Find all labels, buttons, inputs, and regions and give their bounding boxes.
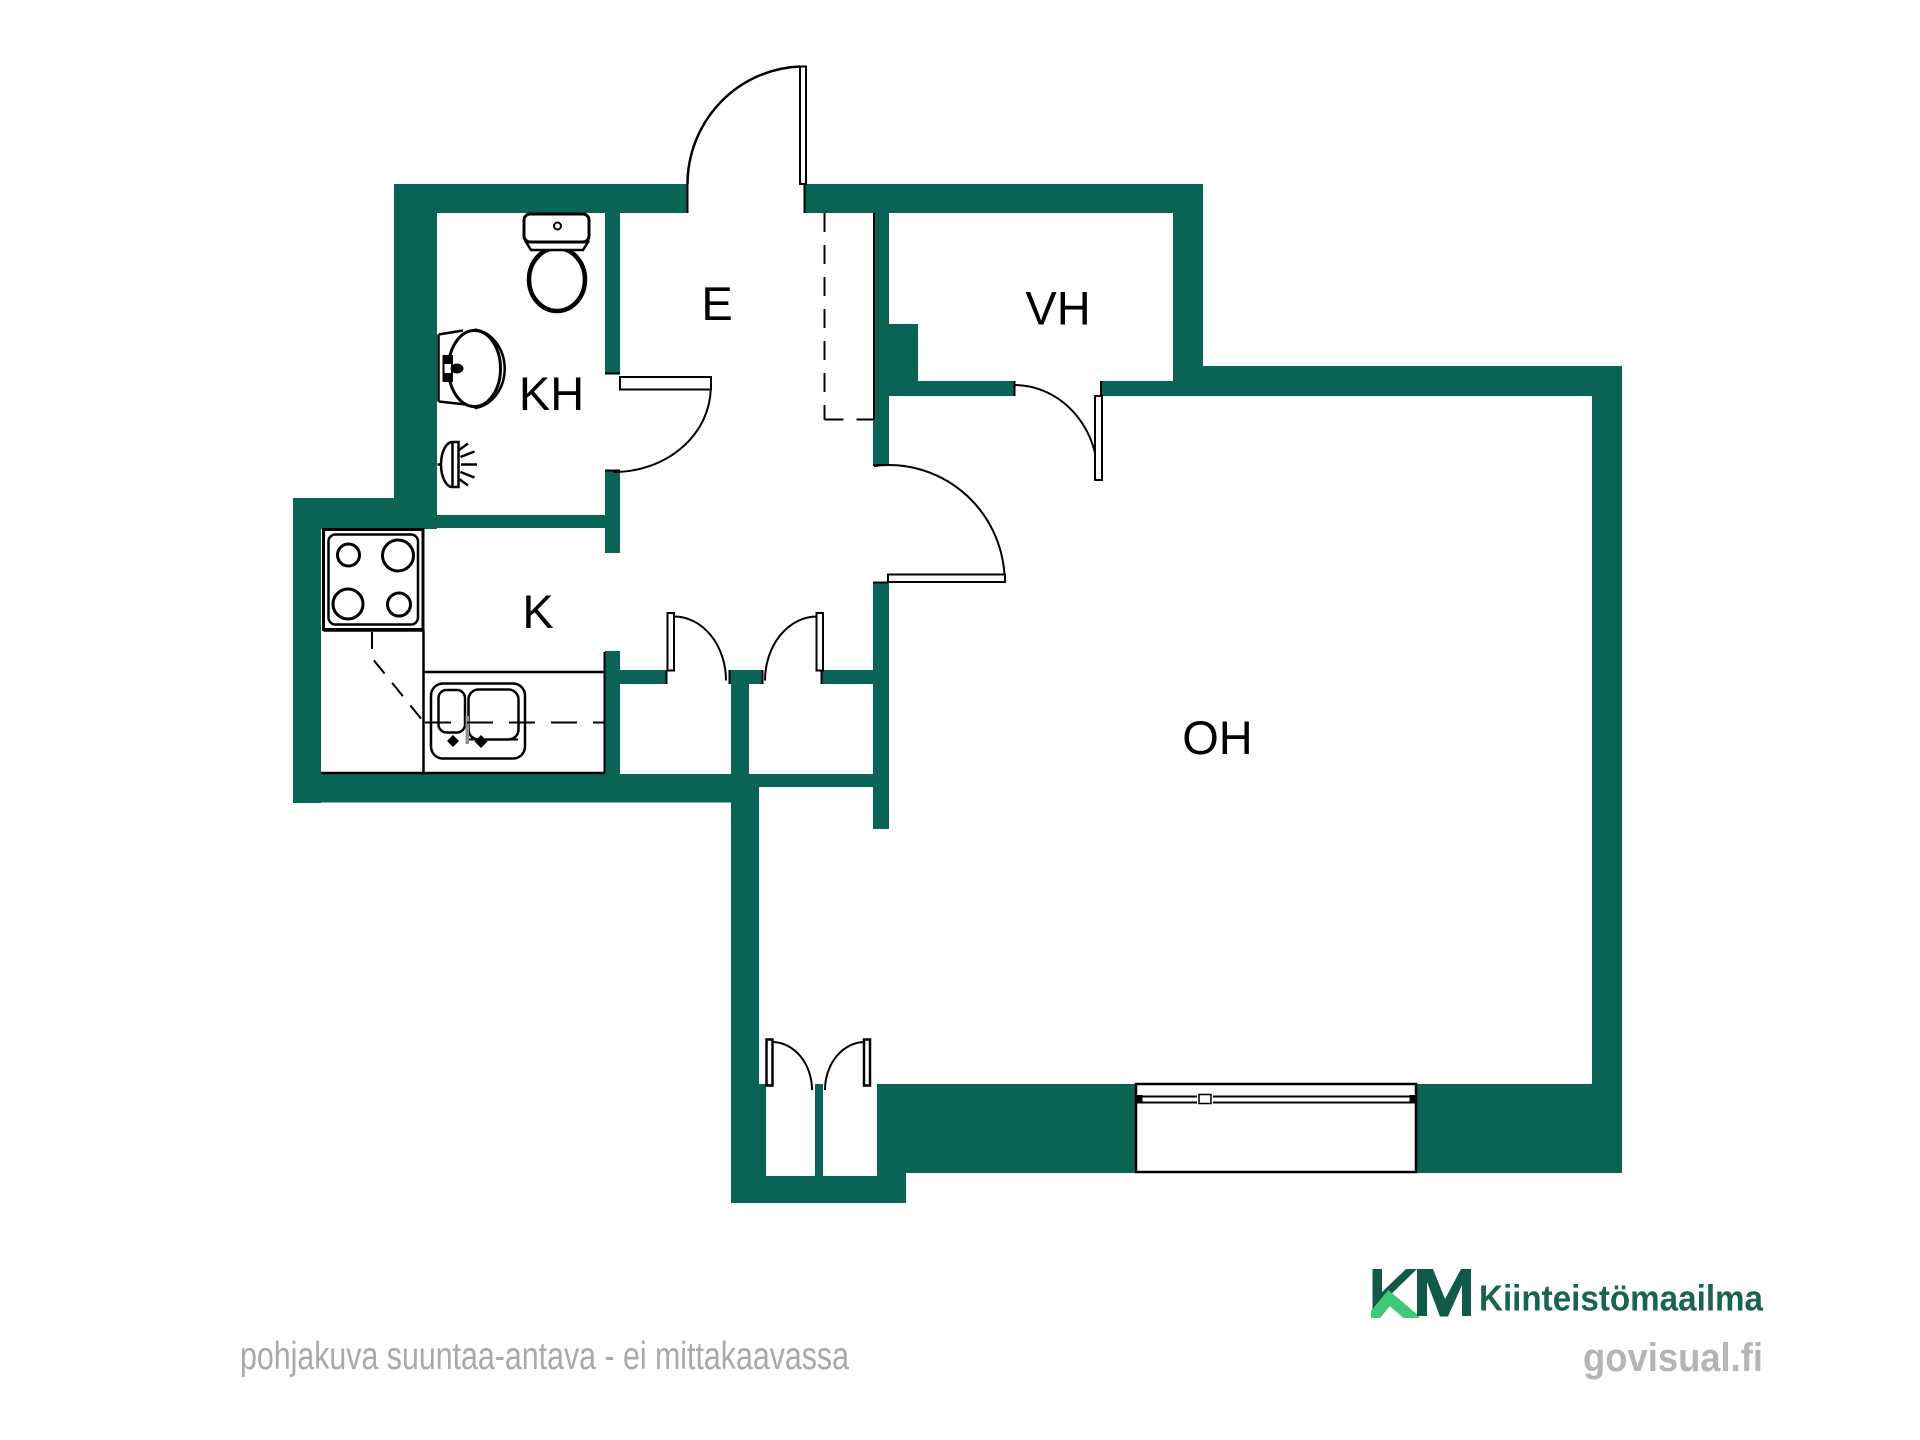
svg-text:E: E — [701, 277, 732, 330]
svg-text:KH: KH — [519, 367, 584, 420]
svg-text:K: K — [522, 585, 553, 638]
svg-text:govisual.fi: govisual.fi — [1583, 1336, 1763, 1380]
svg-text:pohjakuva suuntaa-antava - ei: pohjakuva suuntaa-antava - ei mittakaava… — [240, 1335, 849, 1378]
svg-text:VH: VH — [1025, 282, 1090, 335]
svg-text:OH: OH — [1182, 711, 1253, 764]
svg-text:Kiinteistömaailma: Kiinteistömaailma — [1479, 1278, 1764, 1319]
